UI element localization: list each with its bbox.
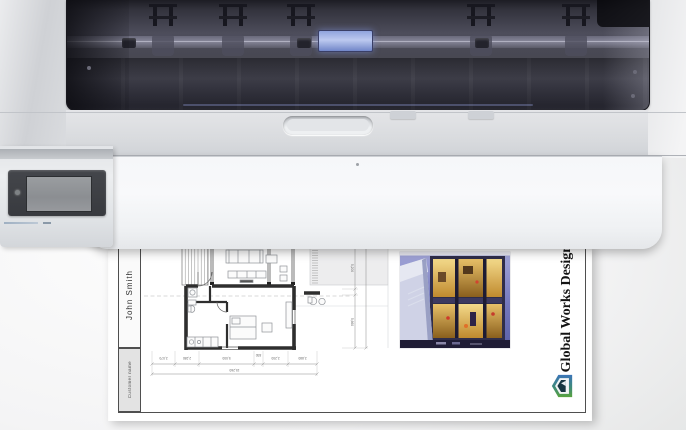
screw bbox=[633, 70, 637, 74]
customer-label-text: Customer name bbox=[127, 361, 132, 398]
dim-label: 830 bbox=[256, 353, 262, 357]
module-top-trim bbox=[0, 149, 113, 159]
mullion bbox=[455, 259, 459, 338]
roll-bracket bbox=[287, 4, 315, 62]
cover-handle-recess bbox=[287, 119, 369, 131]
mullion bbox=[483, 259, 487, 338]
control-panel-module bbox=[0, 146, 113, 247]
model-label-mark bbox=[43, 222, 51, 224]
power-indicator-light bbox=[15, 190, 20, 195]
light-dash bbox=[470, 343, 482, 345]
roll-bracket bbox=[149, 4, 177, 62]
light-dash bbox=[436, 342, 446, 345]
global-works-logo-icon bbox=[550, 372, 574, 400]
platen-area bbox=[67, 58, 649, 110]
dim-label: 5,000 bbox=[222, 356, 230, 360]
floor-plan-drawing: 2,070 2,280 5,000 830 2,200 2,880 15,260… bbox=[142, 244, 392, 414]
dim-label: 5,660 bbox=[350, 318, 354, 326]
control-panel bbox=[8, 170, 106, 216]
company-name-text: Global Works Design bbox=[559, 245, 575, 372]
stairs-treads bbox=[185, 245, 207, 285]
printhead-carriage bbox=[318, 30, 373, 52]
floor-slab bbox=[433, 298, 502, 303]
cover-handle bbox=[283, 116, 373, 135]
paper-sheet: John Smith Customer name bbox=[108, 244, 592, 421]
title-block-customer-label: Customer name bbox=[118, 348, 141, 412]
screw bbox=[631, 94, 635, 98]
touchscreen bbox=[26, 176, 92, 212]
railing-hatch bbox=[312, 248, 318, 283]
deck-tab bbox=[468, 111, 494, 119]
lit-room bbox=[433, 304, 455, 338]
door-arc-entry bbox=[198, 272, 212, 286]
lit-room bbox=[486, 304, 502, 338]
deck-tab bbox=[390, 111, 416, 119]
dim-label: 2,880 bbox=[298, 356, 306, 360]
dim-label: 2,070 bbox=[159, 356, 167, 360]
rail-clip bbox=[475, 38, 489, 48]
lit-room bbox=[486, 259, 502, 297]
photo-stage: John Smith Customer name bbox=[0, 0, 686, 430]
roll-bracket bbox=[562, 4, 590, 62]
roll-bracket bbox=[219, 4, 247, 62]
customer-name-text: John Smith bbox=[125, 270, 134, 320]
front-sensor-dot bbox=[356, 163, 359, 166]
terrace-outline bbox=[310, 246, 388, 285]
printer-body bbox=[0, 0, 686, 248]
dim-label: 2,200 bbox=[271, 356, 279, 360]
dim-label: 2,280 bbox=[183, 356, 191, 360]
photo-top-edge bbox=[400, 252, 510, 256]
lit-room bbox=[458, 259, 483, 297]
screw bbox=[87, 66, 91, 70]
rail-clip bbox=[297, 38, 311, 48]
transparent-top-cover bbox=[66, 0, 650, 111]
title-block-customer-name: John Smith bbox=[118, 242, 141, 348]
deck-seam bbox=[0, 112, 686, 113]
building-photo bbox=[400, 252, 510, 348]
door-arc-interior bbox=[217, 302, 227, 312]
front-cover-panel bbox=[88, 156, 662, 249]
platen-reflection bbox=[183, 104, 532, 106]
company-name-block: Global Works Design bbox=[554, 244, 580, 374]
cover-corner-block bbox=[597, 0, 649, 27]
model-label bbox=[4, 222, 38, 224]
cover-left-shade bbox=[67, 0, 129, 110]
dim-total-label: 15,260 bbox=[229, 368, 239, 372]
light-dash bbox=[452, 342, 460, 345]
dim-label: 5,200 bbox=[350, 264, 354, 272]
roll-bracket bbox=[467, 4, 495, 62]
